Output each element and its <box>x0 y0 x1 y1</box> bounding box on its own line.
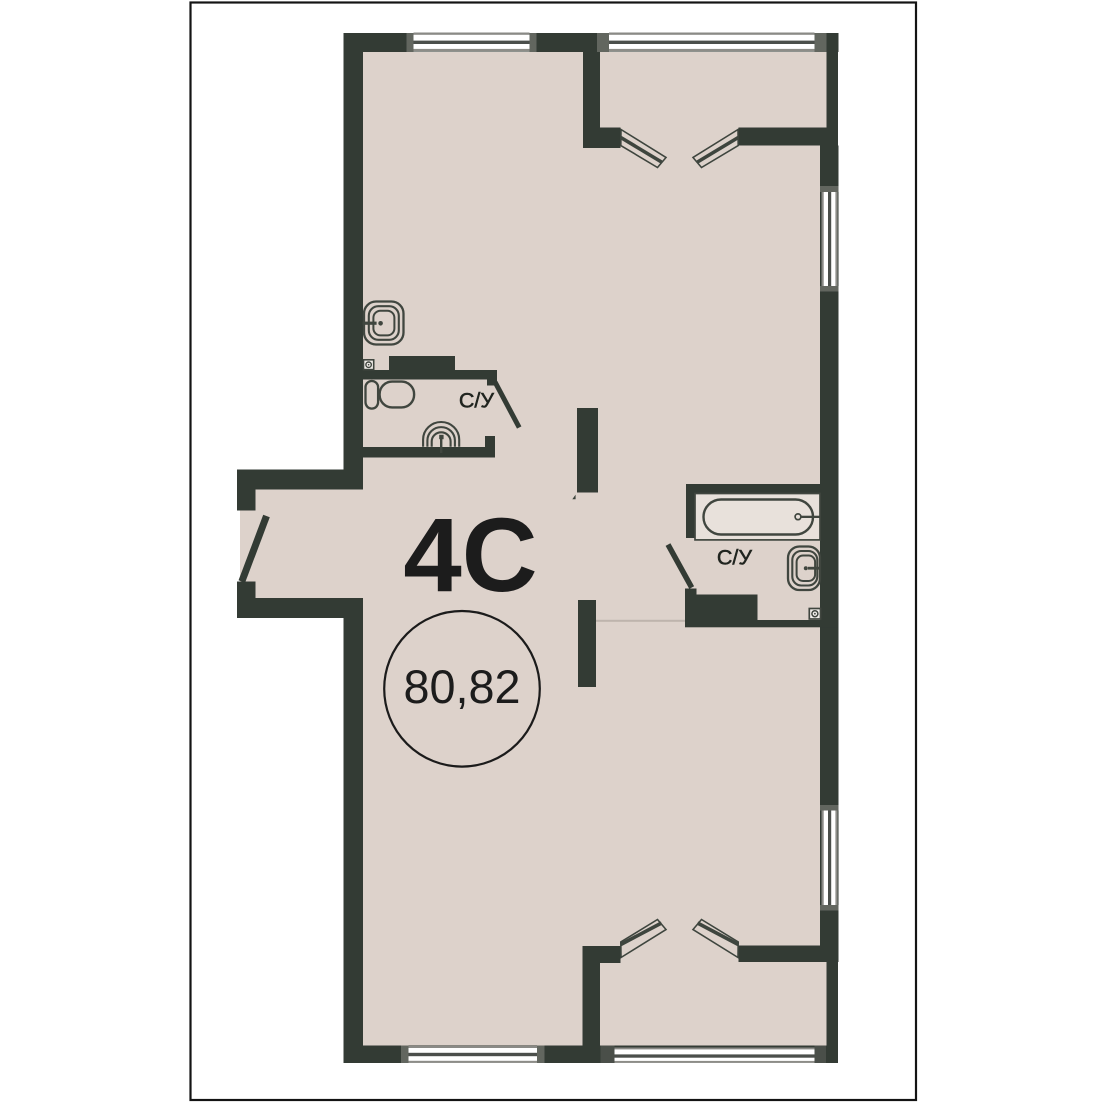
svg-text:4C: 4C <box>403 497 537 614</box>
svg-text:80,82: 80,82 <box>404 661 521 714</box>
svg-text:С/У: С/У <box>459 389 495 413</box>
svg-text:С/У: С/У <box>717 546 753 570</box>
